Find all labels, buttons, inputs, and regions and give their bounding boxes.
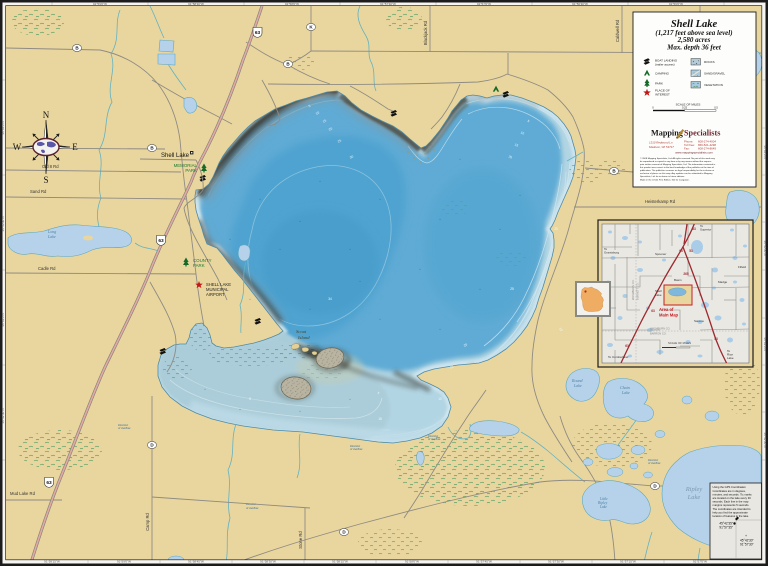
svg-text:N: N [43, 110, 50, 120]
svg-text:91°57'35": 91°57'35" [719, 526, 733, 530]
svg-text:Lake: Lake [621, 390, 630, 395]
svg-text:SCALE OF MILES: SCALE OF MILES [668, 341, 691, 345]
svg-text:Sand Rd: Sand Rd [30, 189, 47, 194]
svg-text:45°44'0"N: 45°44'0"N [763, 145, 767, 158]
svg-text:265: 265 [683, 272, 689, 276]
svg-text:Max. depth 36 feet: Max. depth 36 feet [666, 44, 722, 52]
svg-text:CAMPING: CAMPING [655, 72, 670, 76]
svg-text:91°57'0"W: 91°57'0"W [477, 2, 491, 6]
svg-text:63: 63 [625, 344, 629, 348]
svg-text:91°57'30"W: 91°57'30"W [548, 560, 564, 564]
svg-text:91°58'30"W: 91°58'30"W [260, 560, 276, 564]
svg-text:91°58'30"W: 91°58'30"W [188, 2, 204, 6]
svg-text:53: 53 [689, 249, 693, 253]
svg-text:of rise/flow: of rise/flow [246, 506, 260, 510]
svg-text:63: 63 [158, 238, 164, 244]
svg-text:Island: Island [297, 335, 310, 340]
svg-text:BARRON CO.: BARRON CO. [650, 332, 667, 336]
svg-text:45°43'0"N: 45°43'0"N [1, 313, 5, 326]
svg-text:WASHBURN CO.: WASHBURN CO. [631, 279, 635, 300]
svg-text:63: 63 [46, 480, 52, 486]
svg-text:exclusion of places on this ma: exclusion of places on this map. Any upd… [640, 172, 713, 175]
svg-text:of rise/flow: of rise/flow [118, 426, 132, 430]
svg-text:63: 63 [651, 309, 655, 313]
svg-text:PARK: PARK [185, 168, 197, 173]
svg-text:this product was correct to th: this product was correct to the best kno… [640, 166, 714, 169]
svg-text:Stone Rd: Stone Rd [298, 531, 303, 549]
svg-text:Sarona: Sarona [694, 319, 704, 323]
svg-text:PARK: PARK [655, 82, 663, 86]
svg-text:To Cumberland: To Cumberland [608, 355, 629, 359]
svg-text:Main Map: Main Map [659, 313, 679, 318]
svg-text:Lake: Lake [655, 293, 662, 297]
svg-text:Using the GPS Coordinates:: Using the GPS Coordinates: [713, 485, 747, 489]
svg-text:Lake: Lake [687, 494, 701, 501]
svg-text:WASHBURN CO.: WASHBURN CO. [650, 327, 671, 331]
svg-text:91°59'15"W: 91°59'15"W [44, 560, 60, 564]
svg-text:prior written consent of Mappi: prior written consent of Mapping Special… [640, 163, 716, 166]
svg-text:be reproduced or copied in any: be reproduced or copied in any form or b… [640, 160, 712, 163]
svg-text:91°56'0"W: 91°56'0"W [669, 2, 683, 6]
svg-text:SAND/GRAVEL: SAND/GRAVEL [704, 72, 725, 76]
svg-text:INTEREST: INTEREST [655, 92, 670, 96]
svg-text:45°43'30"N: 45°43'30"N [1, 216, 5, 231]
svg-text:minutes, and seconds. Tic mark: minutes, and seconds. Tic marks [713, 492, 753, 496]
svg-text:Caldwell Rd: Caldwell Rd [615, 19, 620, 42]
svg-text:Coordinates are in degrees,: Coordinates are in degrees, [713, 489, 746, 493]
svg-text:margins represents 5 seconds.: margins represents 5 seconds. [713, 503, 750, 507]
svg-text:63: 63 [679, 249, 683, 253]
svg-text:BURNETT CO.: BURNETT CO. [636, 282, 640, 300]
svg-text:91°58'0"W: 91°58'0"W [405, 560, 419, 564]
svg-text:seconds. Each line in the map: seconds. Each line in the map [713, 500, 749, 504]
svg-text:Grantsburg: Grantsburg [604, 251, 619, 255]
svg-text:Mud Lake Rd: Mud Lake Rd [10, 491, 36, 496]
svg-text:53: 53 [714, 337, 718, 341]
svg-text:91°59'0"W: 91°59'0"W [117, 560, 131, 564]
svg-text:of rise/flow: of rise/flow [648, 461, 662, 465]
svg-text:10: 10 [438, 397, 442, 401]
svg-text:W: W [13, 142, 22, 152]
svg-text:45°44'0"N: 45°44'0"N [1, 121, 5, 134]
svg-text:E: E [72, 142, 78, 152]
svg-text:Made in the U.S.A. First Editi: Made in the U.S.A. First Edition. Not fo… [640, 179, 690, 182]
svg-text:20: 20 [554, 227, 558, 231]
svg-text:S: S [43, 175, 48, 185]
svg-text:SCALE OF MILES: SCALE OF MILES [676, 103, 701, 107]
svg-text:91°56'30"W: 91°56'30"W [572, 2, 588, 6]
svg-text:91°59'0"W: 91°59'0"W [93, 2, 107, 6]
svg-text:Cadle Rd: Cadle Rd [38, 266, 56, 271]
svg-text:Scout: Scout [296, 329, 307, 334]
svg-text:5: 5 [249, 397, 251, 401]
svg-text:PARK: PARK [193, 263, 205, 268]
svg-text:ROCKS: ROCKS [704, 60, 715, 64]
svg-text:45°43'30"N: 45°43'30"N [763, 240, 767, 255]
svg-text:Fifield: Fifield [738, 265, 746, 269]
svg-text:45°43'0"N: 45°43'0"N [763, 337, 767, 350]
svg-text:15: 15 [378, 417, 382, 421]
svg-text:AIRPORT: AIRPORT [206, 292, 225, 297]
svg-text:0.5: 0.5 [714, 105, 718, 109]
svg-text:63: 63 [255, 30, 261, 36]
svg-text:VEGETATION: VEGETATION [704, 83, 723, 87]
svg-text:Specialists, Ltd. for inclusio: Specialists, Ltd. for inclusion in futur… [640, 175, 685, 178]
svg-text:Spooner: Spooner [655, 252, 666, 256]
svg-text:91°57'30": 91°57'30" [740, 543, 754, 547]
svg-text:91°58'15"W: 91°58'15"W [332, 560, 348, 564]
svg-text:Camp Rd: Camp Rd [145, 512, 150, 530]
svg-text:Old 8 Rd: Old 8 Rd [42, 164, 59, 169]
svg-text:0.25: 0.25 [682, 105, 688, 109]
svg-text:Madge: Madge [718, 280, 728, 284]
svg-text:Lake: Lake [727, 356, 734, 360]
svg-text:91°57'30"W: 91°57'30"W [380, 2, 396, 6]
svg-text:of rise/flow: of rise/flow [350, 447, 364, 451]
svg-text:34: 34 [328, 297, 332, 301]
svg-text:Lake: Lake [573, 383, 582, 388]
svg-text:are located on the lake every: are located on the lake every 30 [713, 496, 752, 500]
svg-text:91°57'45"W: 91°57'45"W [476, 560, 492, 564]
svg-text:Lake: Lake [47, 234, 56, 239]
svg-text:publication. The publisher ass: publication. The publisher assumes no le… [640, 169, 715, 172]
svg-text:Superior: Superior [700, 228, 711, 232]
svg-text:91°57'0"W: 91°57'0"W [693, 560, 707, 564]
svg-text:45°42'30"N: 45°42'30"N [763, 432, 767, 447]
svg-text:location of features in the la: location of features in the lake. [713, 514, 750, 518]
svg-text:Lake: Lake [599, 505, 607, 509]
svg-text:91°58'0"W: 91°58'0"W [285, 2, 299, 6]
svg-text:Basin: Basin [674, 278, 682, 282]
svg-text:www.mappingspecialists.com: www.mappingspecialists.com [675, 151, 713, 155]
svg-text:The coordinates are intended t: The coordinates are intended to [713, 507, 751, 511]
svg-text:25: 25 [510, 287, 514, 291]
svg-text:help you find the approximate: help you find the approximate [713, 510, 749, 514]
svg-text:(trailer access): (trailer access) [655, 62, 675, 66]
svg-text:Heisterkamp Rd: Heisterkamp Rd [645, 199, 676, 204]
svg-text:91°58'45"W: 91°58'45"W [188, 560, 204, 564]
svg-text:Shell Lake: Shell Lake [161, 153, 190, 159]
svg-text:Blackjack Rd: Blackjack Rd [423, 20, 428, 45]
svg-text:Area of: Area of [659, 307, 674, 312]
svg-text:45°42'30"N: 45°42'30"N [1, 408, 5, 423]
svg-text:Ripley: Ripley [685, 486, 703, 493]
svg-text:53: 53 [692, 227, 696, 231]
svg-text:Specialists: Specialists [684, 129, 720, 138]
svg-text:1310 Redwood Ln: 1310 Redwood Ln [649, 141, 673, 145]
svg-text:Madison, WI 53717: Madison, WI 53717 [649, 145, 674, 149]
svg-text:© 2008 Mapping Specialists, Lt: © 2008 Mapping Specialists, Ltd. All rig… [640, 157, 716, 160]
svg-text:91°57'15"W: 91°57'15"W [620, 560, 636, 564]
